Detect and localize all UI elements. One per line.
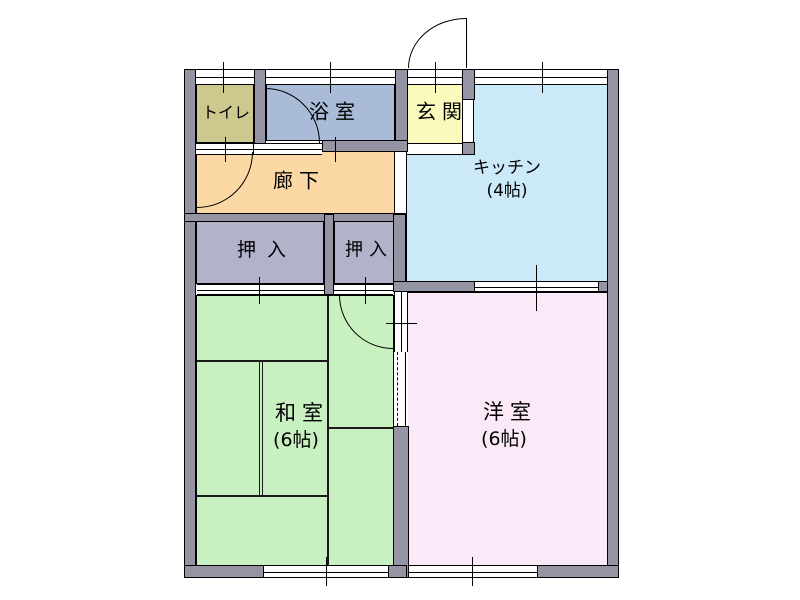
label-entrance: 玄関 xyxy=(416,101,468,124)
entrance-door-leaf xyxy=(466,18,467,68)
tatami-line xyxy=(328,427,394,429)
label-toilet: トイレ xyxy=(202,104,250,122)
closet2-fusuma xyxy=(334,284,393,295)
washitsu-yoshitsu-door-opening xyxy=(394,292,408,352)
wall-entrance-step-post xyxy=(462,142,475,155)
entrance-door-swing-arc xyxy=(408,18,466,68)
wall-washitsu-yoshitsu xyxy=(393,426,409,578)
tatami-line xyxy=(262,361,263,496)
entrance-step xyxy=(407,143,462,155)
wall-left xyxy=(184,69,196,578)
tick-kitchen-sliding-door xyxy=(536,265,537,311)
partition-dashed-line xyxy=(397,352,398,426)
tick-window-bath xyxy=(330,62,331,93)
tick-closet1-fusuma xyxy=(259,277,260,304)
label-closet-2: 押入 xyxy=(345,241,393,262)
label-hallway: 廊下 xyxy=(273,170,325,193)
floor-plan: トイレ 浴室 玄関 キッチン (4帖) 廊下 押入 押入 和室 (6帖) 洋室 … xyxy=(0,0,800,600)
label-kitchen: キッチン xyxy=(473,159,541,179)
label-kitchen-size: (4帖) xyxy=(486,182,527,202)
label-washitsu-size: (6帖) xyxy=(273,430,319,452)
wall-bottom-left xyxy=(184,565,264,578)
tatami-line xyxy=(327,296,329,565)
wall-kitchen-south-right xyxy=(598,281,608,292)
label-yoshitsu: 洋室 xyxy=(483,400,537,424)
hallway-kitchen-opening xyxy=(394,152,407,213)
wall-bottom-mid xyxy=(388,565,407,578)
wall-post-entrance-kitchen xyxy=(462,69,475,100)
label-closet-1: 押入 xyxy=(237,240,297,262)
wall-right xyxy=(607,69,619,578)
tick-window-kitchen xyxy=(542,62,543,93)
label-washitsu: 和室 xyxy=(275,401,329,425)
tatami-line xyxy=(259,361,260,496)
washitsu-yoshitsu-partition-gap xyxy=(394,352,408,426)
wall-kitchen-west xyxy=(393,214,406,282)
tick-window-yoshitsu-south xyxy=(472,557,473,586)
label-yoshitsu-size: (6帖) xyxy=(481,429,527,451)
tick-window-toilet xyxy=(223,62,224,93)
tick-bath-door xyxy=(335,137,336,162)
closet1-fusuma xyxy=(197,284,324,295)
label-bath: 浴室 xyxy=(309,101,361,124)
wall-hallway-south xyxy=(184,213,406,222)
wall-bottom-right xyxy=(537,565,619,578)
wall-closet-divider xyxy=(324,214,334,295)
wall-kitchen-south-left xyxy=(393,281,475,292)
